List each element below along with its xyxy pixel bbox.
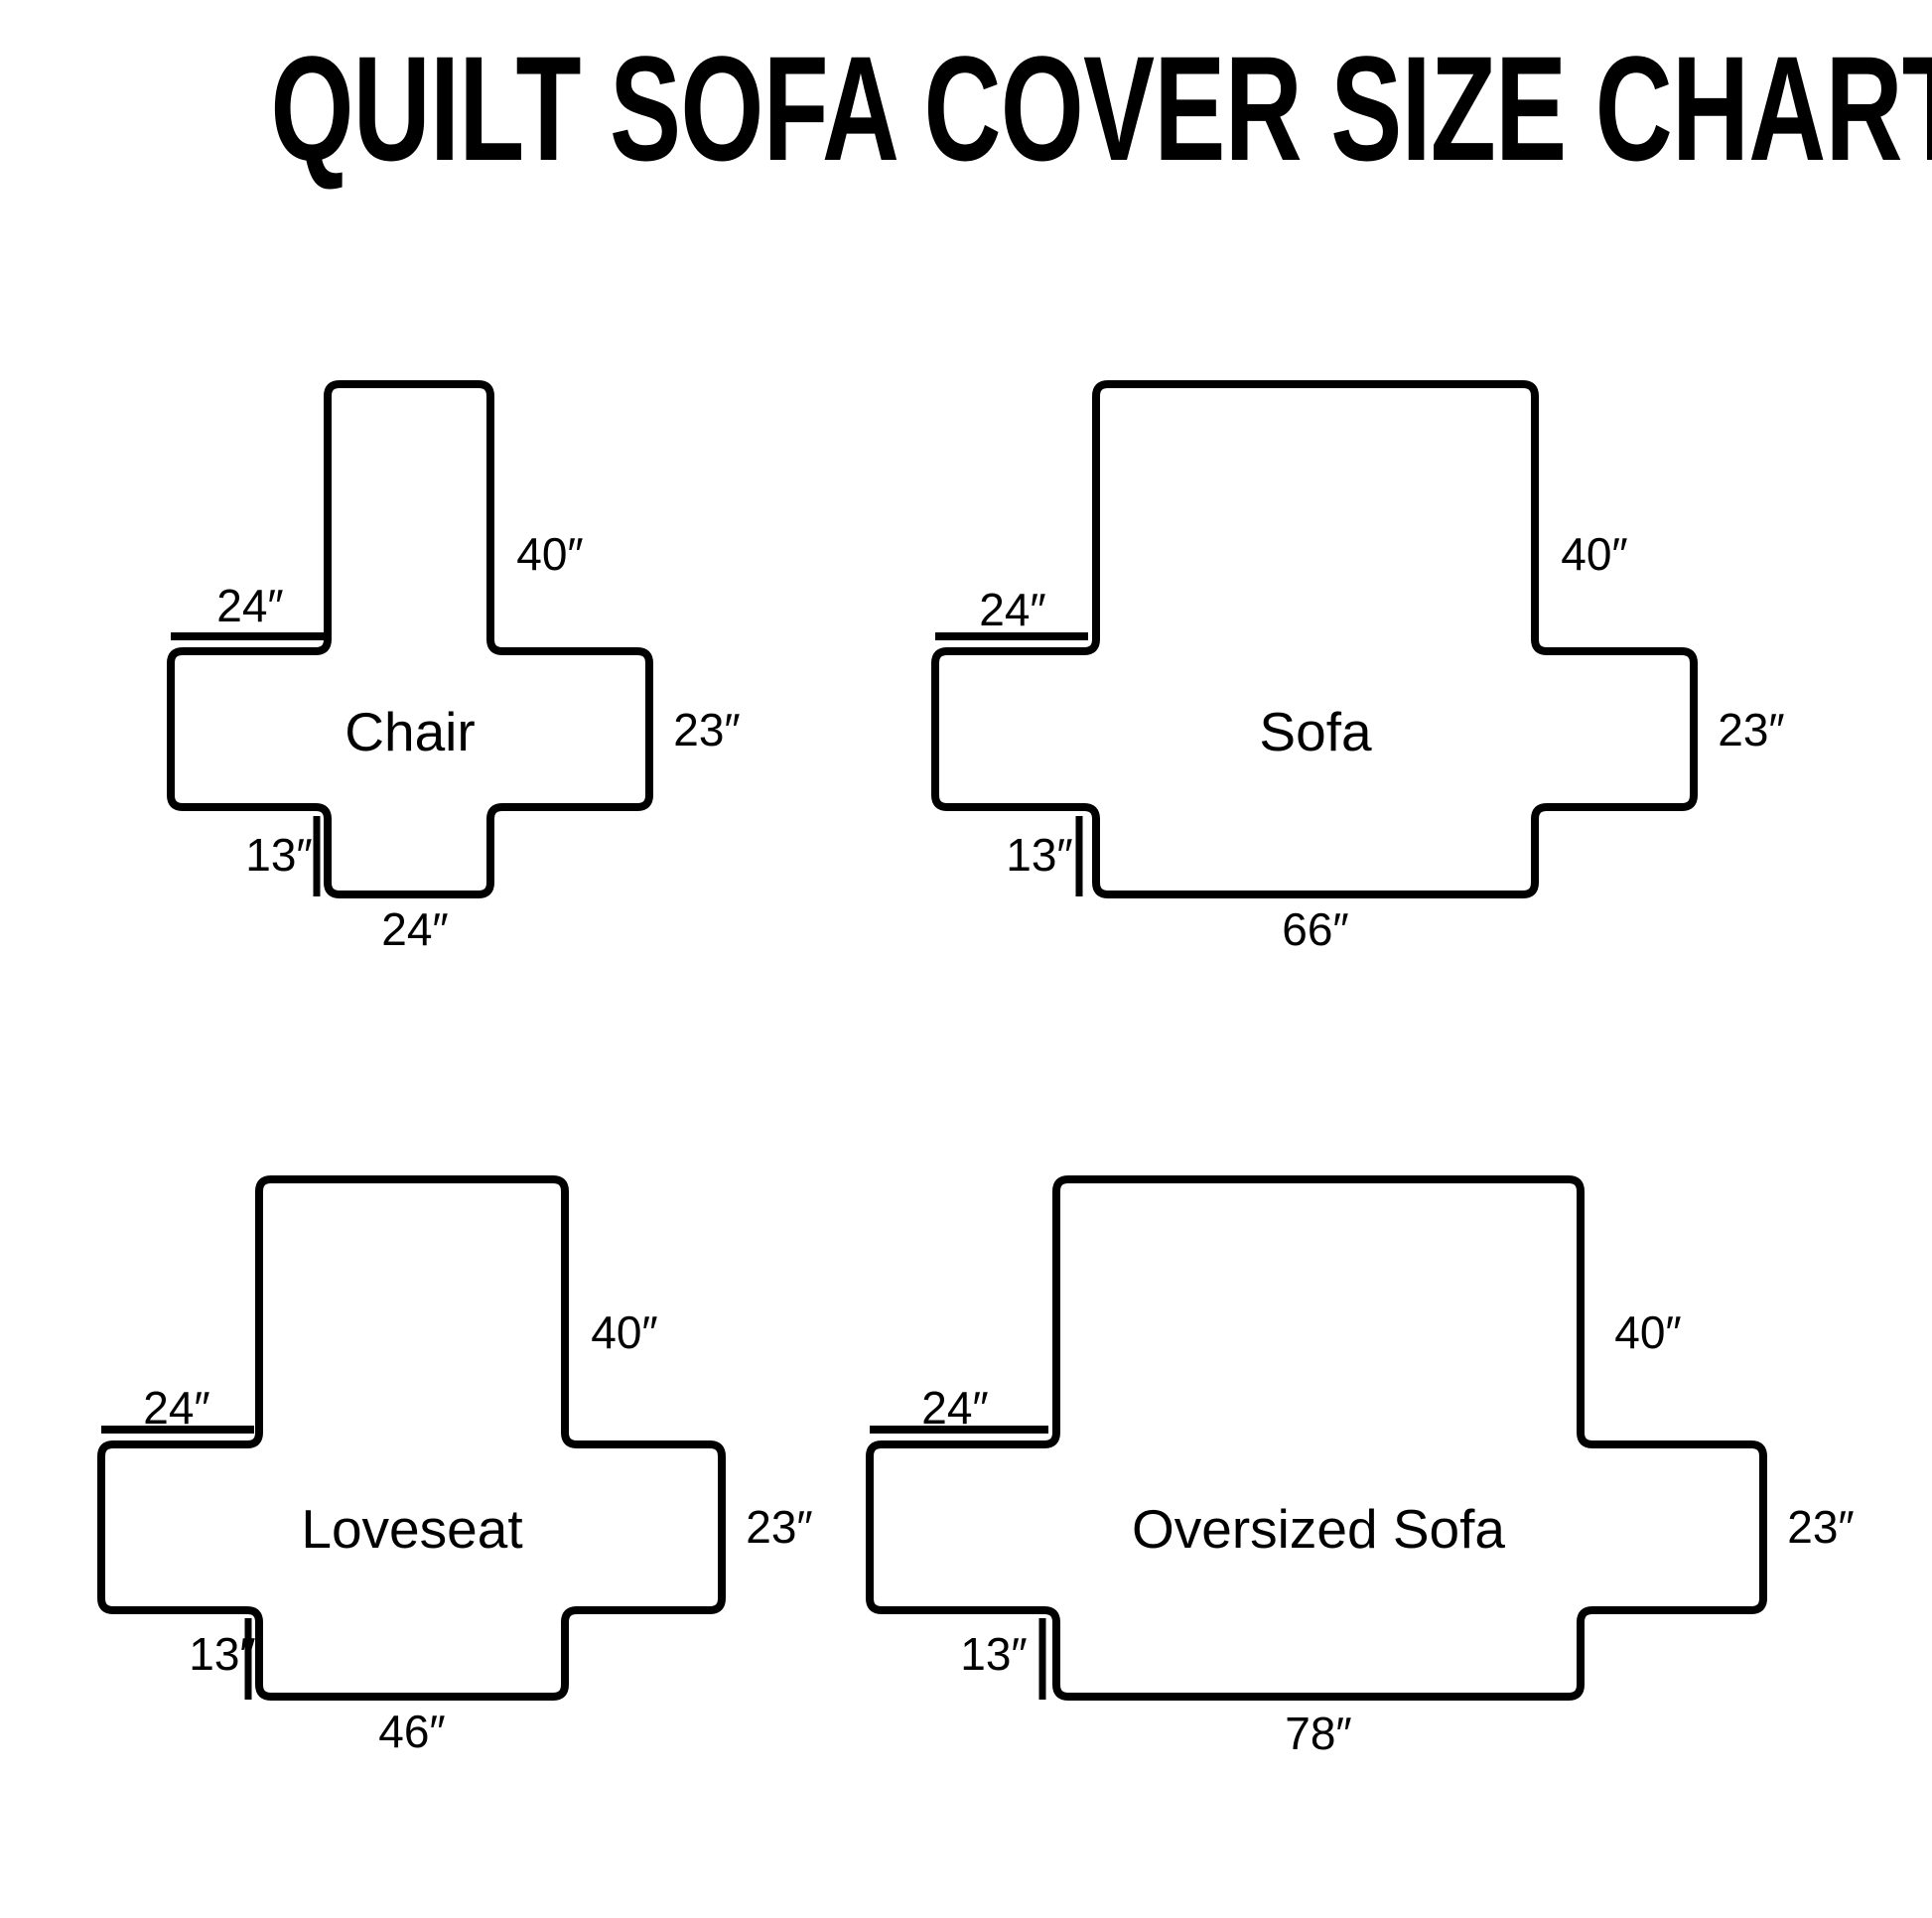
oversized-sofa-cover-outline: [870, 1179, 1763, 1697]
loveseat-cover-outline: [101, 1179, 722, 1697]
chair-name-label: Chair: [345, 701, 475, 762]
loveseat-bottom-width-label: 46″: [378, 1706, 445, 1757]
sofa-front-drop-label: 13″: [1006, 829, 1072, 881]
sofa-bottom-width-label: 66″: [1282, 903, 1348, 955]
chair-arm-side-height-label: 23″: [673, 704, 740, 755]
chair-bottom-width-label: 24″: [381, 903, 448, 955]
diagram-sofa: 40″ 24″ Sofa 23″ 13″ 66″: [935, 384, 1785, 955]
size-chart-figure: 40″ 24″ Chair 23″ 13″ 24″ 40″ 24″ Sofa 2…: [0, 0, 1932, 1918]
loveseat-arm-side-height-label: 23″: [746, 1501, 812, 1553]
loveseat-arm-top-width-label: 24″: [143, 1382, 209, 1434]
oversized-sofa-front-drop-label: 13″: [960, 1628, 1027, 1680]
sofa-arm-side-height-label: 23″: [1718, 704, 1784, 755]
chair-back-height-label: 40″: [516, 528, 583, 580]
chair-arm-top-width-label: 24″: [216, 580, 283, 631]
oversized-sofa-back-height-label: 40″: [1614, 1306, 1681, 1358]
oversized-sofa-name-label: Oversized Sofa: [1132, 1498, 1505, 1560]
sofa-arm-top-width-label: 24″: [979, 584, 1045, 635]
oversized-sofa-arm-top-width-label: 24″: [921, 1382, 988, 1434]
sofa-back-height-label: 40″: [1561, 528, 1627, 580]
diagram-oversized-sofa: 40″ 24″ Oversized Sofa 23″ 13″ 78″: [870, 1179, 1855, 1759]
oversized-sofa-bottom-width-label: 78″: [1285, 1708, 1351, 1759]
diagram-chair: 40″ 24″ Chair 23″ 13″ 24″: [171, 384, 741, 955]
loveseat-name-label: Loveseat: [301, 1498, 522, 1560]
chair-front-drop-label: 13″: [245, 829, 312, 881]
sofa-name-label: Sofa: [1259, 701, 1372, 762]
diagram-loveseat: 40″ 24″ Loveseat 23″ 13″ 46″: [101, 1179, 813, 1757]
loveseat-back-height-label: 40″: [591, 1306, 657, 1358]
oversized-sofa-arm-side-height-label: 23″: [1787, 1501, 1854, 1553]
loveseat-front-drop-label: 13″: [189, 1628, 255, 1680]
